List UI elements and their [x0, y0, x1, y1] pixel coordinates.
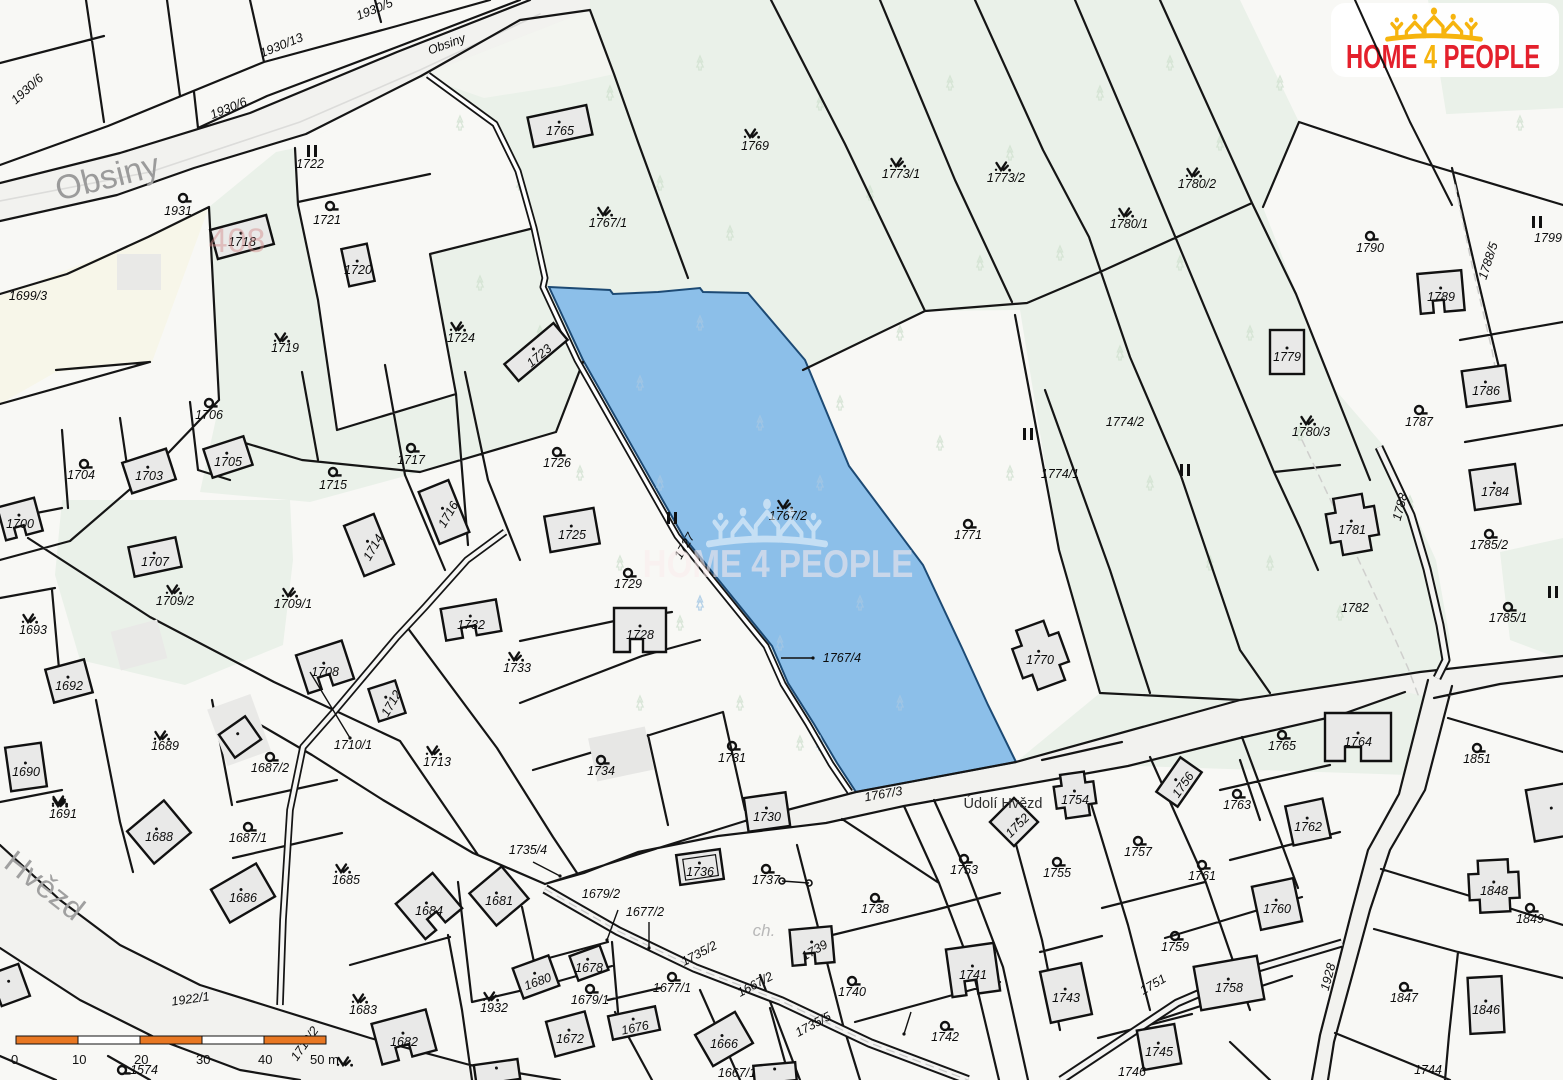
svg-text:40: 40 — [258, 1052, 272, 1067]
svg-text:1729: 1729 — [614, 577, 642, 591]
svg-text:1774/2: 1774/2 — [1106, 415, 1144, 429]
svg-text:1724: 1724 — [447, 331, 475, 345]
svg-text:HOME 4 PEOPLE: HOME 4 PEOPLE — [643, 541, 914, 585]
svg-text:1758: 1758 — [1215, 981, 1243, 995]
svg-text:1733: 1733 — [503, 661, 531, 675]
svg-text:50 m: 50 m — [310, 1052, 339, 1067]
svg-text:1734: 1734 — [587, 764, 615, 778]
svg-text:1764: 1764 — [1344, 735, 1372, 749]
svg-text:1730: 1730 — [753, 810, 781, 824]
svg-text:1767/4: 1767/4 — [823, 651, 861, 665]
svg-text:1672: 1672 — [556, 1032, 584, 1046]
svg-text:1771: 1771 — [954, 528, 982, 542]
svg-text:1713: 1713 — [423, 755, 451, 769]
svg-text:1790: 1790 — [1356, 241, 1384, 255]
svg-text:1770: 1770 — [1026, 653, 1054, 667]
svg-text:1743: 1743 — [1052, 991, 1080, 1005]
svg-text:1687/1: 1687/1 — [229, 831, 267, 845]
svg-text:1731: 1731 — [718, 751, 746, 765]
svg-text:1708: 1708 — [311, 665, 339, 679]
svg-text:1774/1: 1774/1 — [1041, 467, 1079, 481]
svg-text:1728: 1728 — [626, 628, 654, 642]
svg-text:1851: 1851 — [1463, 752, 1491, 766]
svg-text:1703: 1703 — [135, 469, 163, 483]
svg-text:1757: 1757 — [1124, 845, 1153, 859]
svg-text:1677/1: 1677/1 — [653, 981, 691, 995]
svg-text:1709/1: 1709/1 — [274, 597, 312, 611]
svg-text:1765: 1765 — [1268, 739, 1296, 753]
svg-text:1780/1: 1780/1 — [1110, 217, 1148, 231]
svg-text:1932: 1932 — [480, 1001, 508, 1015]
svg-text:1678: 1678 — [575, 961, 603, 975]
svg-text:1785/1: 1785/1 — [1489, 611, 1527, 625]
svg-text:1682: 1682 — [390, 1035, 418, 1049]
svg-text:1773/1: 1773/1 — [882, 167, 920, 181]
svg-text:1681: 1681 — [485, 894, 513, 908]
svg-text:1704: 1704 — [67, 468, 95, 482]
svg-text:1683: 1683 — [349, 1003, 377, 1017]
svg-text:1744: 1744 — [1414, 1063, 1442, 1077]
svg-text:1745: 1745 — [1145, 1045, 1173, 1059]
svg-text:30: 30 — [196, 1052, 210, 1067]
svg-text:1738: 1738 — [861, 902, 889, 916]
svg-text:1742: 1742 — [931, 1030, 959, 1044]
svg-text:1849: 1849 — [1516, 912, 1544, 926]
svg-text:1706: 1706 — [195, 408, 223, 422]
svg-text:1677/2: 1677/2 — [626, 905, 664, 919]
svg-text:1684: 1684 — [415, 904, 443, 918]
svg-text:1699/3: 1699/3 — [9, 289, 47, 303]
svg-text:408: 408 — [209, 222, 266, 260]
svg-text:1666: 1666 — [710, 1037, 738, 1051]
svg-text:1720: 1720 — [344, 263, 372, 277]
svg-text:ch.: ch. — [753, 921, 776, 940]
svg-text:1737: 1737 — [752, 873, 781, 887]
svg-text:1679/1: 1679/1 — [571, 993, 609, 1007]
svg-text:0: 0 — [11, 1052, 18, 1067]
svg-text:1735/4: 1735/4 — [509, 843, 547, 857]
svg-text:10: 10 — [72, 1052, 86, 1067]
svg-text:1760: 1760 — [1263, 902, 1291, 916]
svg-text:1759: 1759 — [1161, 940, 1189, 954]
svg-text:1753: 1753 — [950, 863, 978, 877]
svg-text:1786: 1786 — [1472, 384, 1500, 398]
svg-text:1782: 1782 — [1341, 601, 1369, 615]
svg-text:1779: 1779 — [1273, 350, 1301, 364]
svg-text:1688: 1688 — [145, 830, 173, 844]
svg-text:1709/2: 1709/2 — [156, 594, 194, 608]
svg-text:1787: 1787 — [1405, 415, 1434, 429]
svg-text:1740: 1740 — [838, 985, 866, 999]
svg-text:1686: 1686 — [229, 891, 257, 905]
svg-text:1789: 1789 — [1427, 290, 1455, 304]
svg-text:1707: 1707 — [141, 555, 170, 569]
svg-text:1755: 1755 — [1043, 866, 1071, 880]
svg-text:1848: 1848 — [1480, 884, 1508, 898]
svg-text:1784: 1784 — [1481, 485, 1509, 499]
svg-text:1765: 1765 — [546, 124, 574, 138]
svg-text:1762: 1762 — [1294, 820, 1322, 834]
svg-text:1722: 1722 — [296, 157, 324, 171]
svg-text:1691: 1691 — [49, 807, 77, 821]
svg-text:1693: 1693 — [19, 623, 47, 637]
svg-text:1705: 1705 — [214, 455, 242, 469]
svg-text:1761: 1761 — [1188, 869, 1216, 883]
svg-text:1785/2: 1785/2 — [1470, 538, 1508, 552]
svg-text:1689: 1689 — [151, 739, 179, 753]
svg-text:1846: 1846 — [1472, 1003, 1500, 1017]
svg-text:1773/2: 1773/2 — [987, 171, 1025, 185]
svg-text:1767/1: 1767/1 — [589, 216, 627, 230]
svg-text:1679/2: 1679/2 — [582, 887, 620, 901]
svg-text:1763: 1763 — [1223, 798, 1251, 812]
svg-text:1685: 1685 — [332, 873, 360, 887]
svg-text:1847: 1847 — [1390, 991, 1419, 1005]
svg-text:20: 20 — [134, 1052, 148, 1067]
svg-text:1746: 1746 — [1118, 1065, 1146, 1079]
svg-text:1667/1: 1667/1 — [718, 1066, 756, 1080]
svg-text:1732: 1732 — [457, 618, 485, 632]
svg-text:1725: 1725 — [558, 528, 586, 542]
svg-text:1721: 1721 — [313, 213, 341, 227]
svg-text:1799: 1799 — [1534, 231, 1562, 245]
svg-text:1726: 1726 — [543, 456, 571, 470]
svg-text:1692: 1692 — [55, 679, 83, 693]
svg-text:1769: 1769 — [741, 139, 769, 153]
svg-text:1719: 1719 — [271, 341, 299, 355]
svg-text:1780/3: 1780/3 — [1292, 425, 1330, 439]
svg-text:1710/1: 1710/1 — [334, 738, 372, 752]
svg-text:1931: 1931 — [164, 204, 192, 218]
svg-text:1687/2: 1687/2 — [251, 761, 289, 775]
svg-text:Údolí Hvězd: Údolí Hvězd — [964, 795, 1043, 812]
svg-text:1717: 1717 — [397, 453, 426, 467]
svg-text:1780/2: 1780/2 — [1178, 177, 1216, 191]
svg-text:1690: 1690 — [12, 765, 40, 779]
svg-text:1781: 1781 — [1338, 523, 1366, 537]
svg-text:1741: 1741 — [959, 968, 987, 982]
svg-text:1700: 1700 — [6, 517, 34, 531]
svg-text:1715: 1715 — [319, 478, 347, 492]
svg-text:1754: 1754 — [1061, 793, 1089, 807]
